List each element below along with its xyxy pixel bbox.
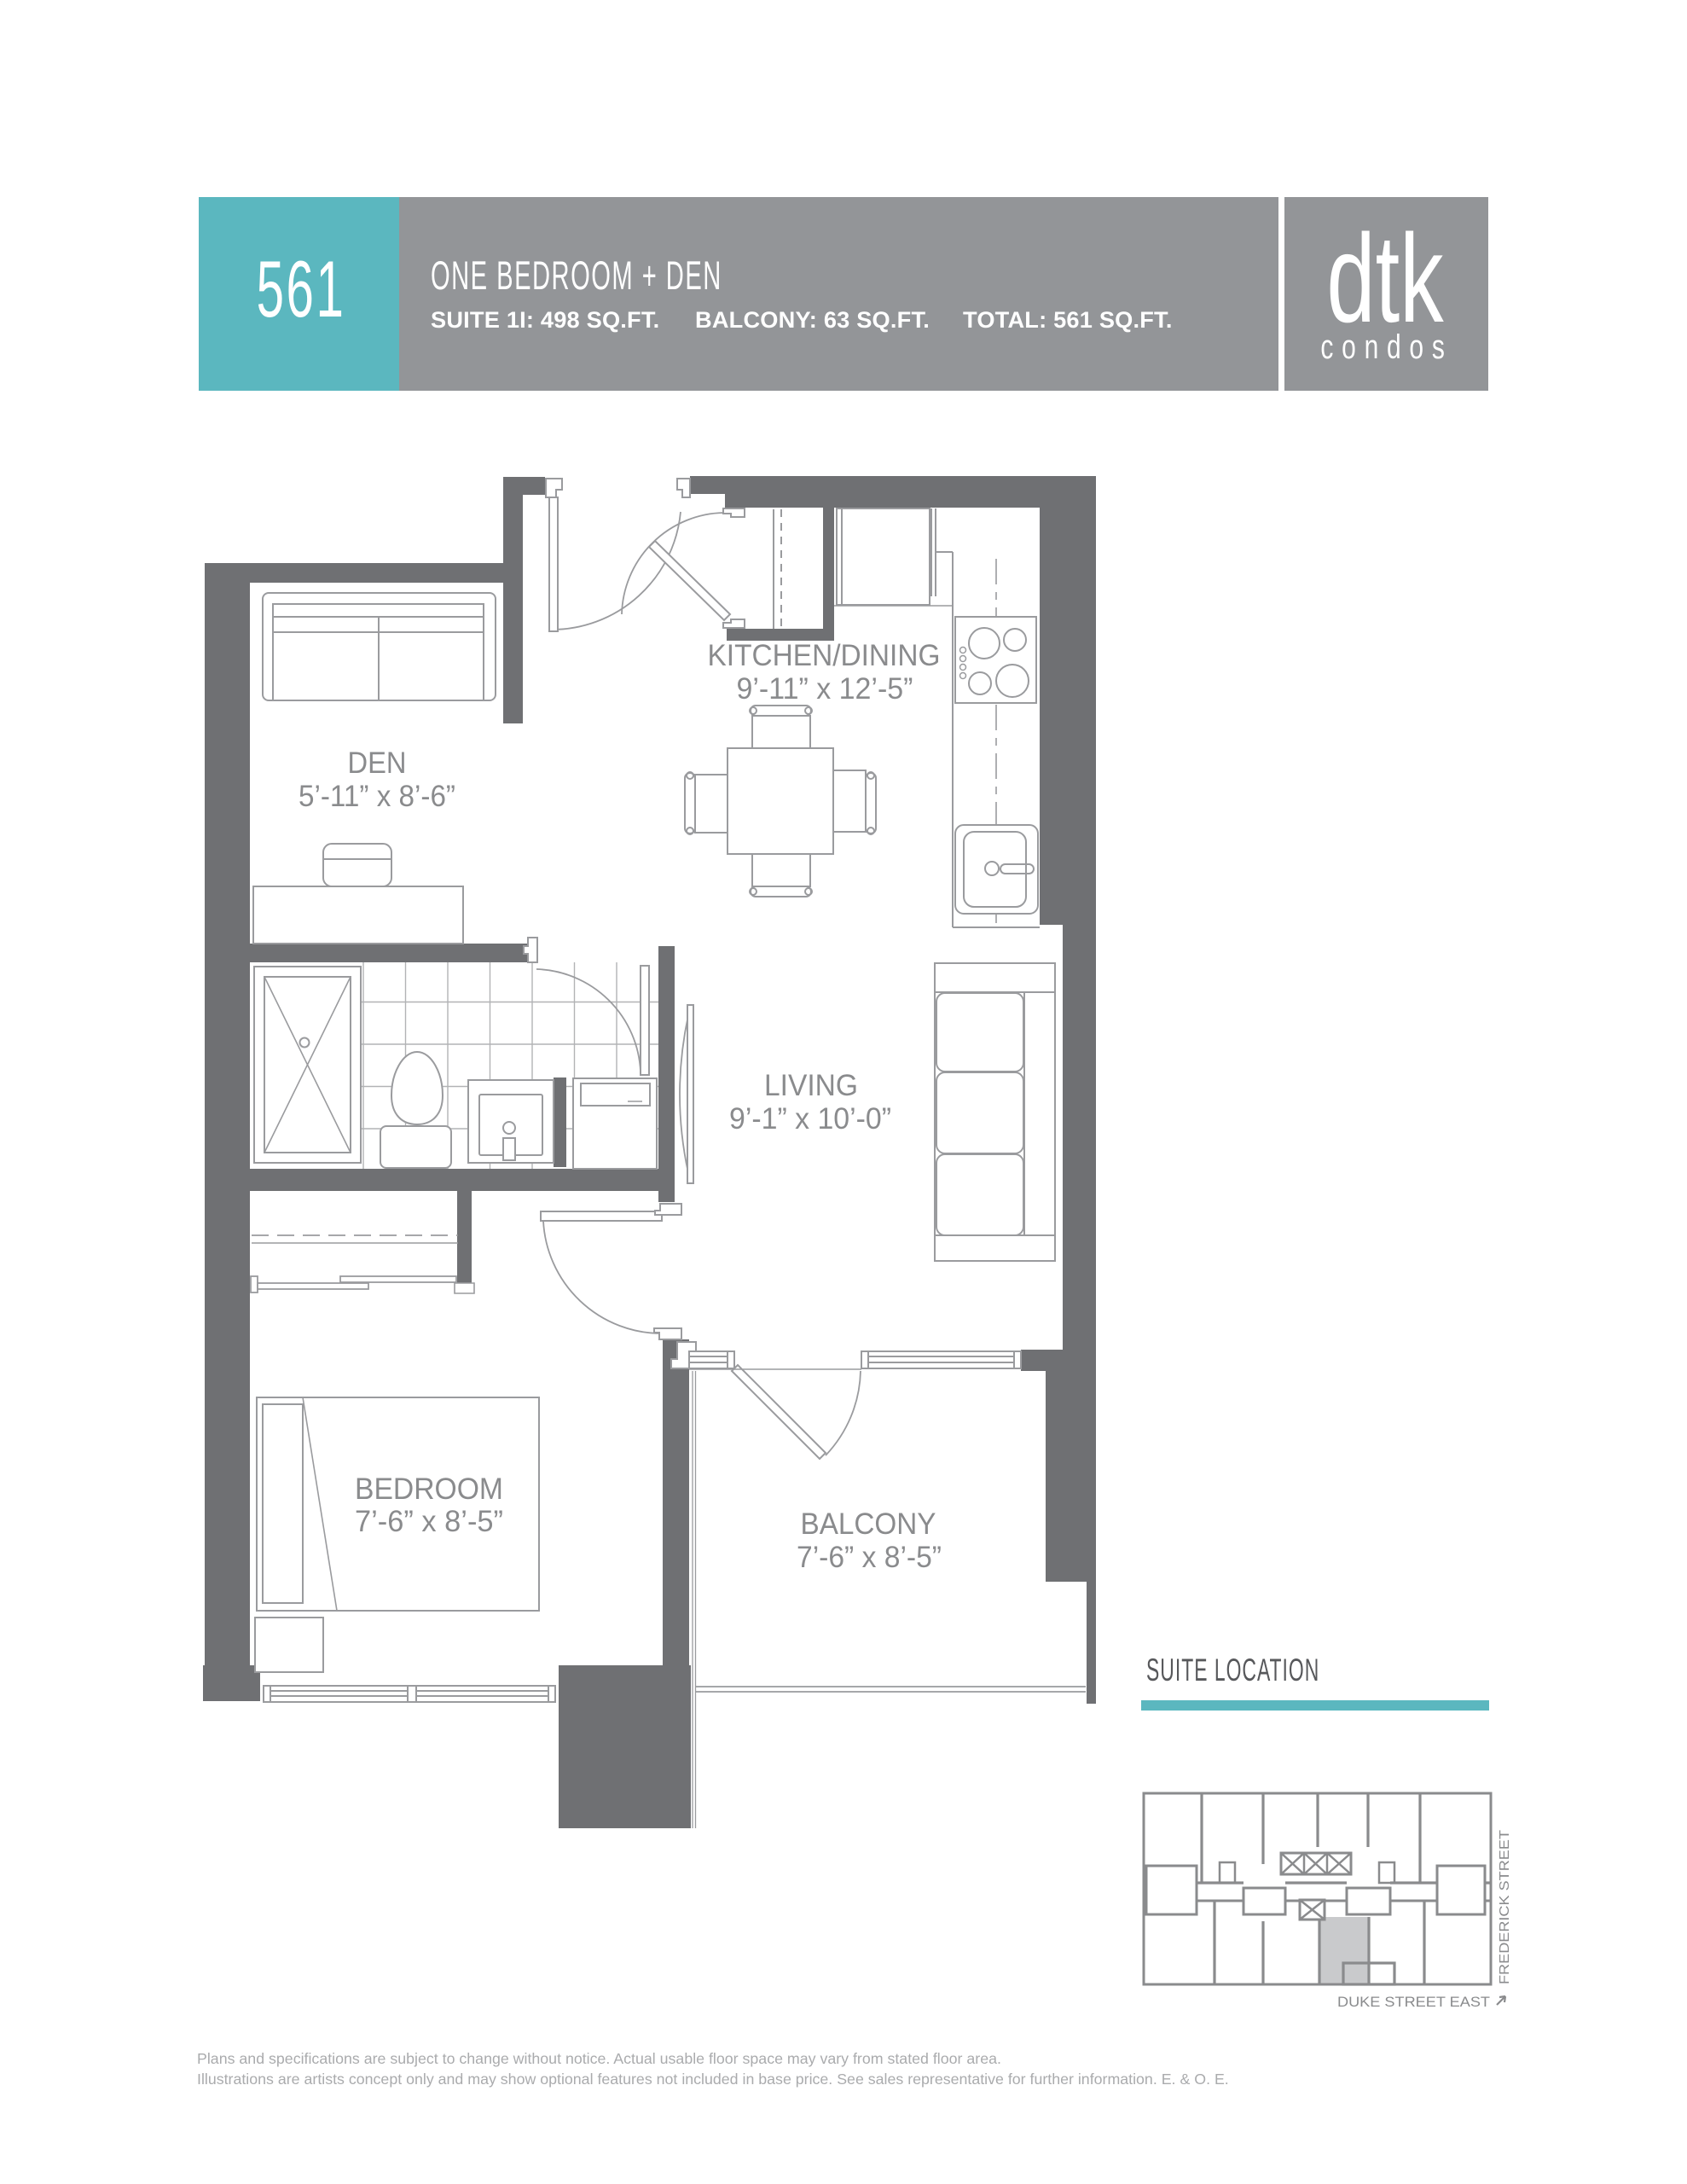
svg-text:561: 561 xyxy=(257,244,346,334)
svg-text:KITCHEN/DINING: KITCHEN/DINING xyxy=(708,639,941,672)
svg-text:7’-6” x 8’-5”: 7’-6” x 8’-5” xyxy=(355,1505,503,1538)
svg-text:9’-11” x 12’-5”: 9’-11” x 12’-5” xyxy=(737,672,913,706)
svg-text:dtk: dtk xyxy=(1326,208,1444,349)
svg-text:SUITE 1I: 498 SQ.FT.: SUITE 1I: 498 SQ.FT. xyxy=(431,306,659,333)
svg-text:9’-1” x 10’-0”: 9’-1” x 10’-0” xyxy=(729,1102,891,1136)
svg-text:SUITE LOCATION: SUITE LOCATION xyxy=(1146,1652,1319,1687)
svg-text:DUKE STREET EAST: DUKE STREET EAST xyxy=(1337,1994,1490,2010)
svg-text:TOTAL: 561 SQ.FT.: TOTAL: 561 SQ.FT. xyxy=(963,306,1173,333)
svg-text:DEN: DEN xyxy=(348,746,407,780)
svg-text:Plans and specifications are s: Plans and specifications are subject to … xyxy=(197,2050,1001,2067)
svg-text:5’-11” x 8’-6”: 5’-11” x 8’-6” xyxy=(299,780,455,813)
svg-text:LIVING: LIVING xyxy=(764,1069,858,1102)
svg-text:ONE BEDROOM + DEN: ONE BEDROOM + DEN xyxy=(431,254,722,299)
svg-text:FREDERICK STREET: FREDERICK STREET xyxy=(1498,1830,1512,1984)
svg-text:Illustrations are artists conc: Illustrations are artists concept only a… xyxy=(197,2071,1229,2088)
svg-text:BALCONY: BALCONY xyxy=(801,1507,936,1541)
svg-text:condos: condos xyxy=(1320,328,1452,366)
svg-text:BEDROOM: BEDROOM xyxy=(355,1472,503,1506)
svg-text:BALCONY: 63 SQ.FT.: BALCONY: 63 SQ.FT. xyxy=(695,306,930,333)
svg-text:7’-6” x 8’-5”: 7’-6” x 8’-5” xyxy=(797,1541,942,1574)
